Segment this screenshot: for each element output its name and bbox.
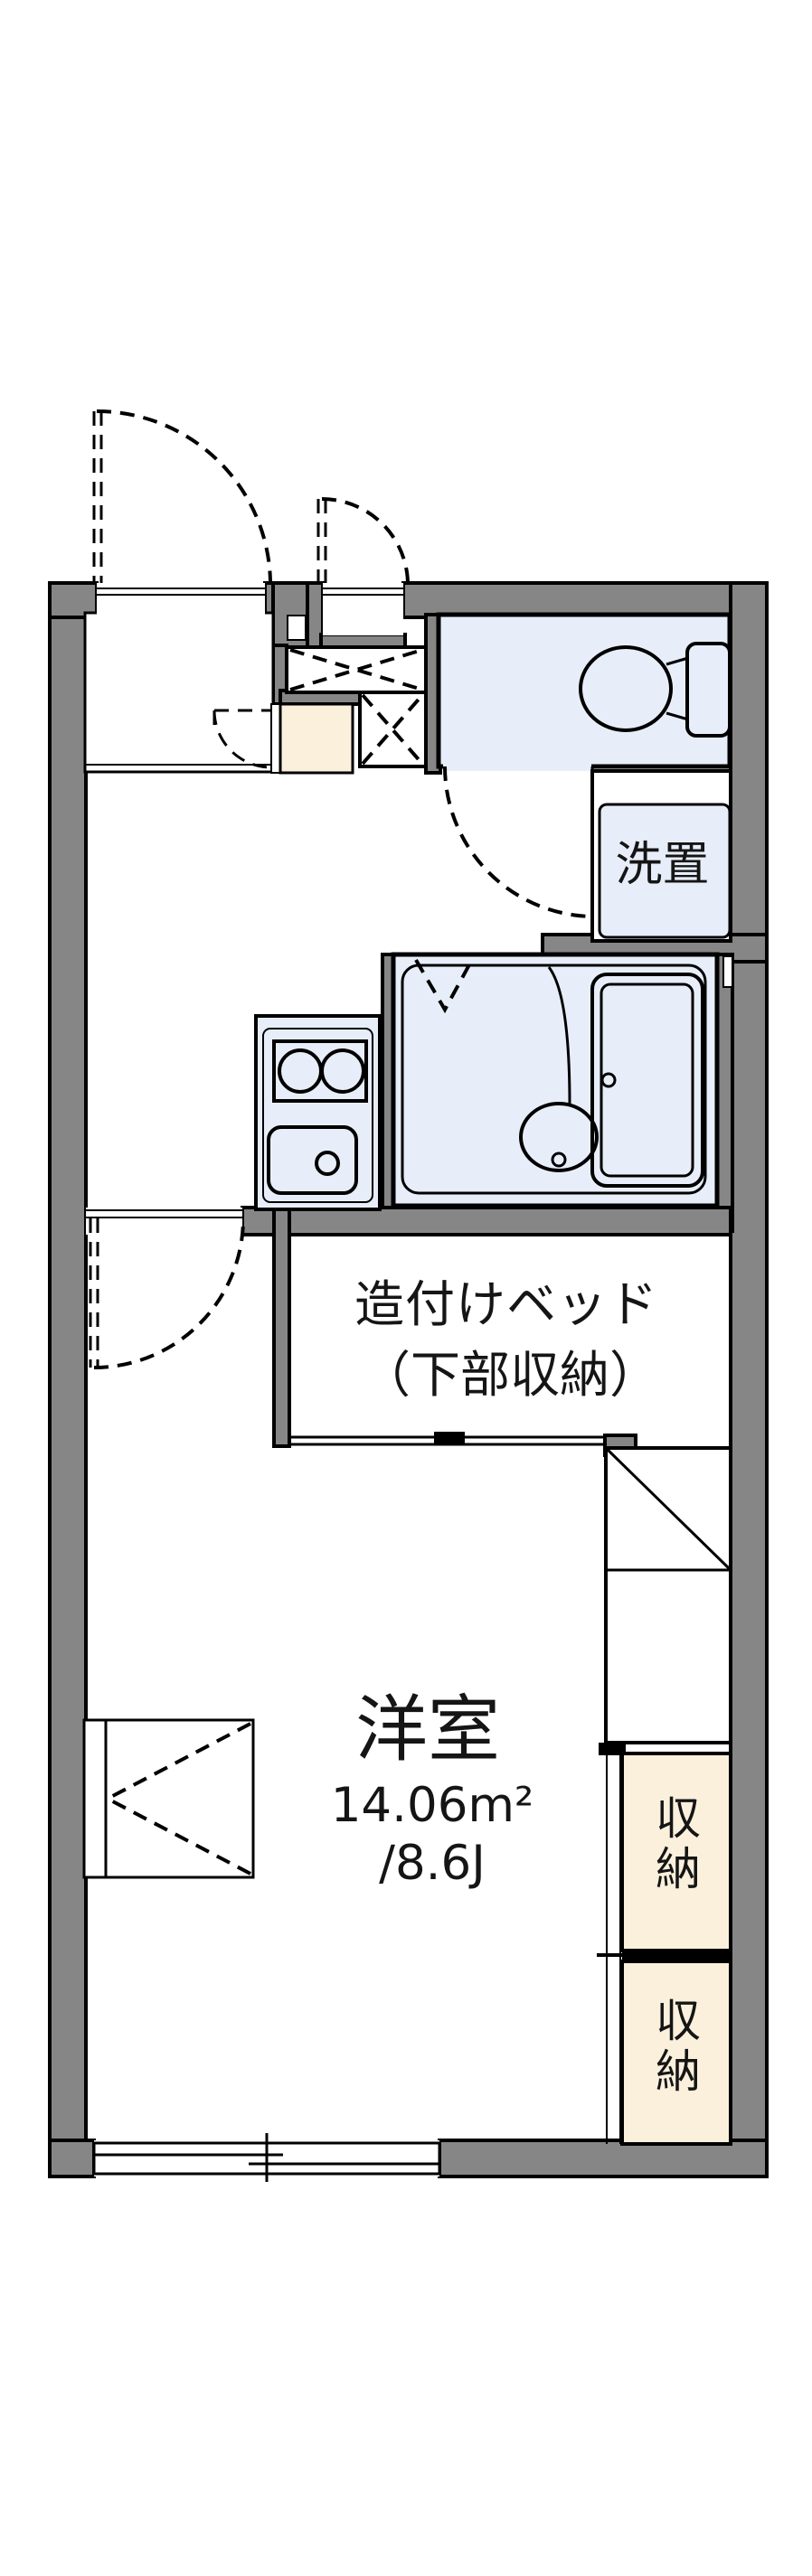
closet-upper-label: 収納 <box>653 1793 703 1894</box>
genkan-floor <box>280 704 353 773</box>
bed-front-edge <box>289 1432 605 1445</box>
washer-label: 洗置 <box>594 839 731 893</box>
sink-icon <box>269 1127 356 1193</box>
entrance-door-swing-icon <box>94 411 270 585</box>
bed-label-line2: （下部収納） <box>284 1347 736 1404</box>
room-area-jo-label: /8.6J <box>292 1837 572 1892</box>
burner-icon <box>322 1050 364 1092</box>
entrance-area <box>85 583 426 773</box>
floor-plan: 洗置 造付けベッド （下部収納） 洋室 14.06m² /8.6J 収納 収納 <box>0 0 812 2576</box>
room-name-label: 洋室 <box>292 1688 563 1772</box>
room-door-swing-icon <box>86 1208 243 1368</box>
faucet-icon <box>316 1152 338 1174</box>
window-alcove-icon <box>84 1720 253 1877</box>
burner-icon <box>279 1050 321 1092</box>
toilet-bowl-icon <box>581 647 671 730</box>
toilet-door-swing-icon <box>445 766 592 917</box>
bed-label-line1: 造付けベッド <box>280 1276 732 1333</box>
bathroom <box>393 954 717 1206</box>
wall-niche <box>723 956 732 987</box>
room-area-sqm-label: 14.06m² <box>292 1779 572 1834</box>
kitchen-unit <box>256 1016 380 1209</box>
storage-door-swing-icon <box>318 499 408 585</box>
toilet-tank-icon <box>687 644 730 736</box>
closet-lower-label: 収納 <box>653 1996 703 2097</box>
washbasin-icon <box>521 1104 597 1170</box>
sliding-window-icon <box>94 2133 439 2182</box>
